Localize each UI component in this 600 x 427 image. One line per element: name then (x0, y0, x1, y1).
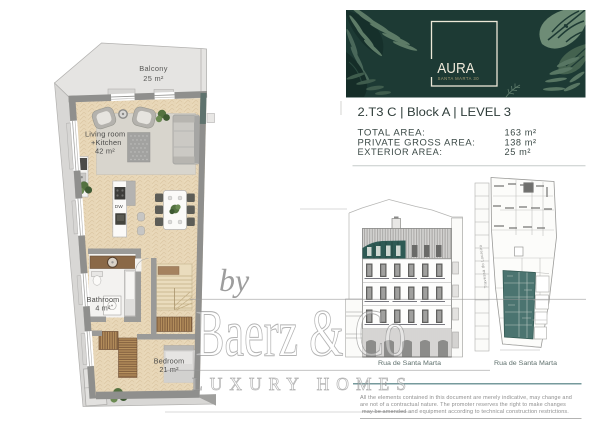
svg-text:Baerz & Co: Baerz & Co (195, 296, 406, 370)
svg-text:163 m²: 163 m² (505, 127, 537, 137)
svg-text:SANTA MARTA 30: SANTA MARTA 30 (438, 76, 480, 81)
svg-text:25 m²: 25 m² (143, 74, 164, 83)
svg-text:by: by (219, 262, 250, 298)
svg-text:42 m²: 42 m² (95, 147, 115, 156)
svg-text:25 m²: 25 m² (505, 147, 532, 157)
svg-text:PRIVATE GROSS AREA:: PRIVATE GROSS AREA: (358, 137, 476, 147)
svg-text:EXTERIOR AREA:: EXTERIOR AREA: (358, 147, 443, 157)
svg-text:DW: DW (115, 204, 123, 210)
svg-text:2.T3 C | Block A | LEVEL 3: 2.T3 C | Block A | LEVEL 3 (358, 105, 512, 119)
svg-text:TOTAL AREA:: TOTAL AREA: (358, 127, 426, 137)
svg-text:4 m²: 4 m² (95, 304, 111, 313)
svg-text:are not of a contractual natur: are not of a contractual nature. The pro… (360, 402, 566, 408)
svg-text:All the elements contained in: All the elements contained in this docum… (360, 395, 572, 401)
svg-text:AURA: AURA (437, 60, 475, 77)
svg-text:21 m²: 21 m² (159, 365, 179, 374)
svg-text:Balcony: Balcony (139, 64, 167, 73)
svg-text:Rua de Santa Marta: Rua de Santa Marta (494, 360, 557, 367)
svg-text:LUXURY HOMES: LUXURY HOMES (192, 374, 413, 394)
svg-text:138 m²: 138 m² (505, 137, 537, 147)
